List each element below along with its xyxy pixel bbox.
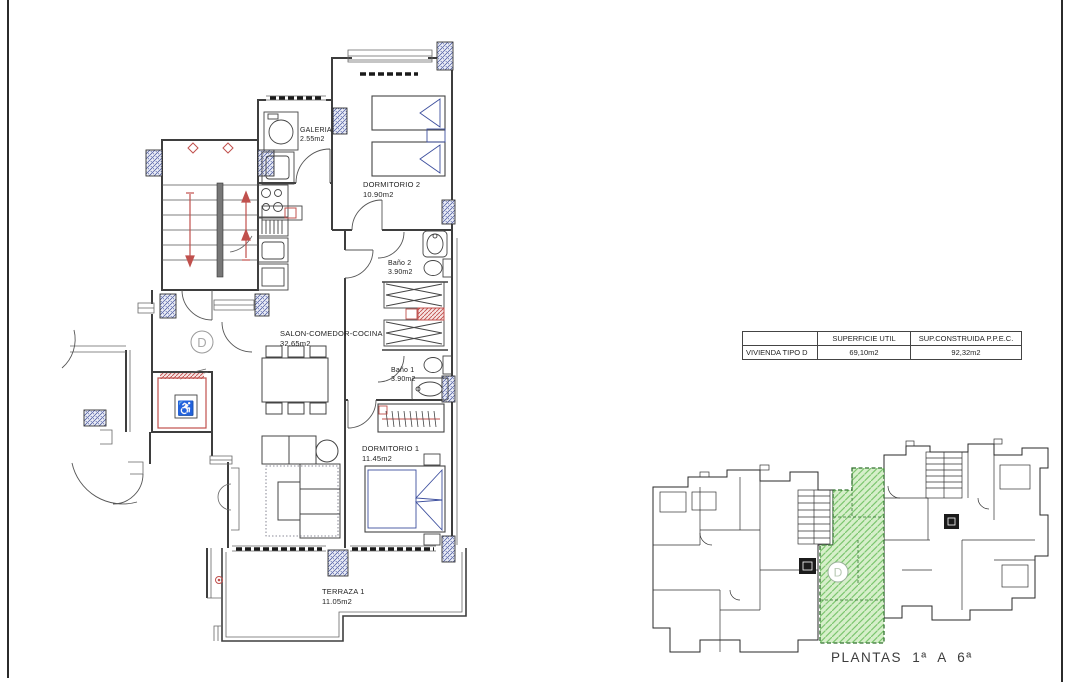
room-label-salon: SALON-COMEDOR-COCINA 32.65m2 — [280, 329, 383, 349]
door-arcs — [62, 149, 404, 504]
area-table-header-row: SUPERFICIE UTIL SUP.CONSTRUIDA P.P.E.C. — [743, 332, 1022, 346]
services-shaft — [406, 308, 444, 320]
kitchen-fixtures — [258, 112, 302, 290]
wheelchair-icon: ♿ — [177, 400, 194, 417]
elevator: ♿ — [158, 373, 206, 428]
key-plan-unit-letter: D — [834, 566, 843, 580]
room-label-bano1: Baño 1 3.90m2 — [391, 366, 416, 384]
area-table-unit-label: VIVIENDA TIPO D — [743, 346, 818, 360]
area-table-header-construida: SUP.CONSTRUIDA P.P.E.C. — [911, 332, 1022, 346]
room-label-dormitorio2: DORMITORIO 2 10.90m2 — [363, 180, 420, 200]
sofa-set — [262, 436, 340, 538]
area-table-util-value: 69,10m2 — [818, 346, 911, 360]
bedroom2-furniture — [372, 96, 445, 176]
columns — [84, 42, 455, 576]
walls — [126, 58, 466, 641]
bedroom1-furniture — [365, 404, 445, 545]
key-plan: D — [653, 439, 1048, 652]
unit-letter-circle: D — [191, 331, 213, 353]
area-table: SUPERFICIE UTIL SUP.CONSTRUIDA P.P.E.C. … — [742, 331, 1022, 360]
room-label-bano2: Baño 2 3.90m2 — [388, 259, 413, 277]
room-label-terraza1: TERRAZA 1 11.05m2 — [322, 587, 365, 607]
red-diamond-symbols — [188, 143, 233, 153]
staircase — [162, 143, 258, 277]
highlighted-unit: D — [820, 468, 884, 643]
area-table-data-row: VIVIENDA TIPO D 69,10m2 92,32m2 — [743, 346, 1022, 360]
drawing-sheet: ♿ D — [0, 0, 1070, 682]
main-floor-plan: ♿ D — [62, 42, 466, 641]
kitchen-red-marker — [285, 208, 296, 218]
area-table-header-util: SUPERFICIE UTIL — [818, 332, 911, 346]
room-label-galeria: GALERIA 2.55m2 — [300, 126, 332, 144]
room-label-dormitorio1: DORMITORIO 1 11.45m2 — [362, 444, 419, 464]
floors-caption: PLANTAS 1ª A 6ª — [831, 650, 973, 665]
area-table-construida-value: 92,32m2 — [911, 346, 1022, 360]
dining-set — [262, 346, 328, 414]
unit-letter: D — [197, 335, 206, 350]
area-table-corner-cell — [743, 332, 818, 346]
stair-stringer — [217, 183, 223, 277]
